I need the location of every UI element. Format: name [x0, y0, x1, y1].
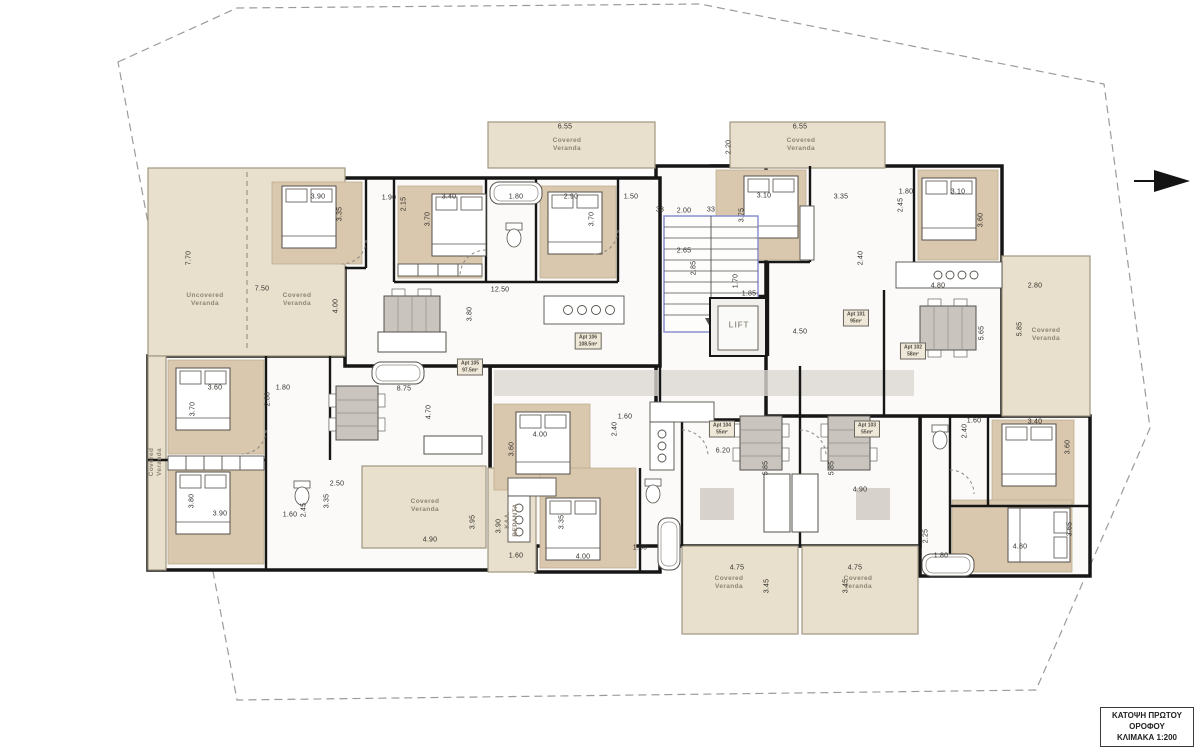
title-line-1: ΚΑΤΟΨΗ ΠΡΩΤΟΥ [1101, 711, 1193, 722]
floor-plan-page: LIFT 6.556.55332.00332.652.853.903.351.9… [0, 0, 1197, 748]
corridor [494, 370, 914, 396]
title-block: ΚΑΤΟΨΗ ΠΡΩΤΟΥ ΟΡΟΦΟΥ ΚΛΙΜΑΚΑ 1:200 [1100, 707, 1194, 747]
lift-shaft [710, 298, 766, 356]
title-line-3: ΚΛΙΜΑΚΑ 1:200 [1101, 733, 1193, 744]
title-line-2: ΟΡΟΦΟΥ [1101, 722, 1193, 733]
north-arrow-icon [1134, 170, 1190, 192]
floor-plan-drawing [0, 0, 1197, 748]
